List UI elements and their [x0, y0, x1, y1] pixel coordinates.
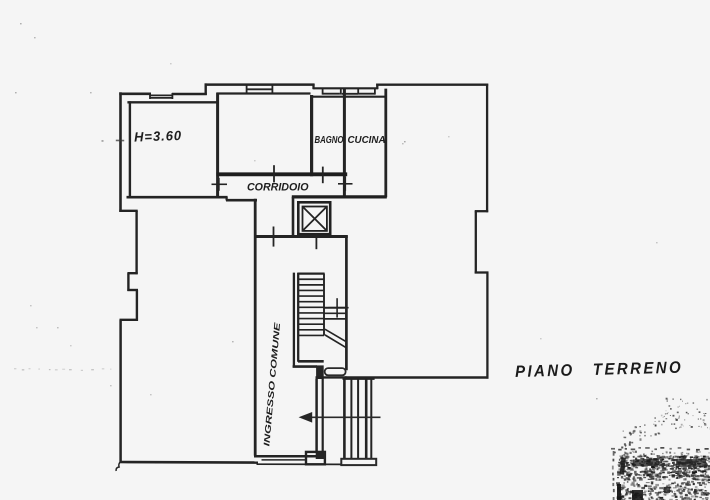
svg-text:CORRIDOIO: CORRIDOIO [247, 182, 309, 194]
svg-text:H=3.60: H=3.60 [134, 128, 182, 145]
svg-text:CUCINA: CUCINA [348, 135, 386, 146]
svg-text:BAGNO: BAGNO [315, 135, 344, 146]
